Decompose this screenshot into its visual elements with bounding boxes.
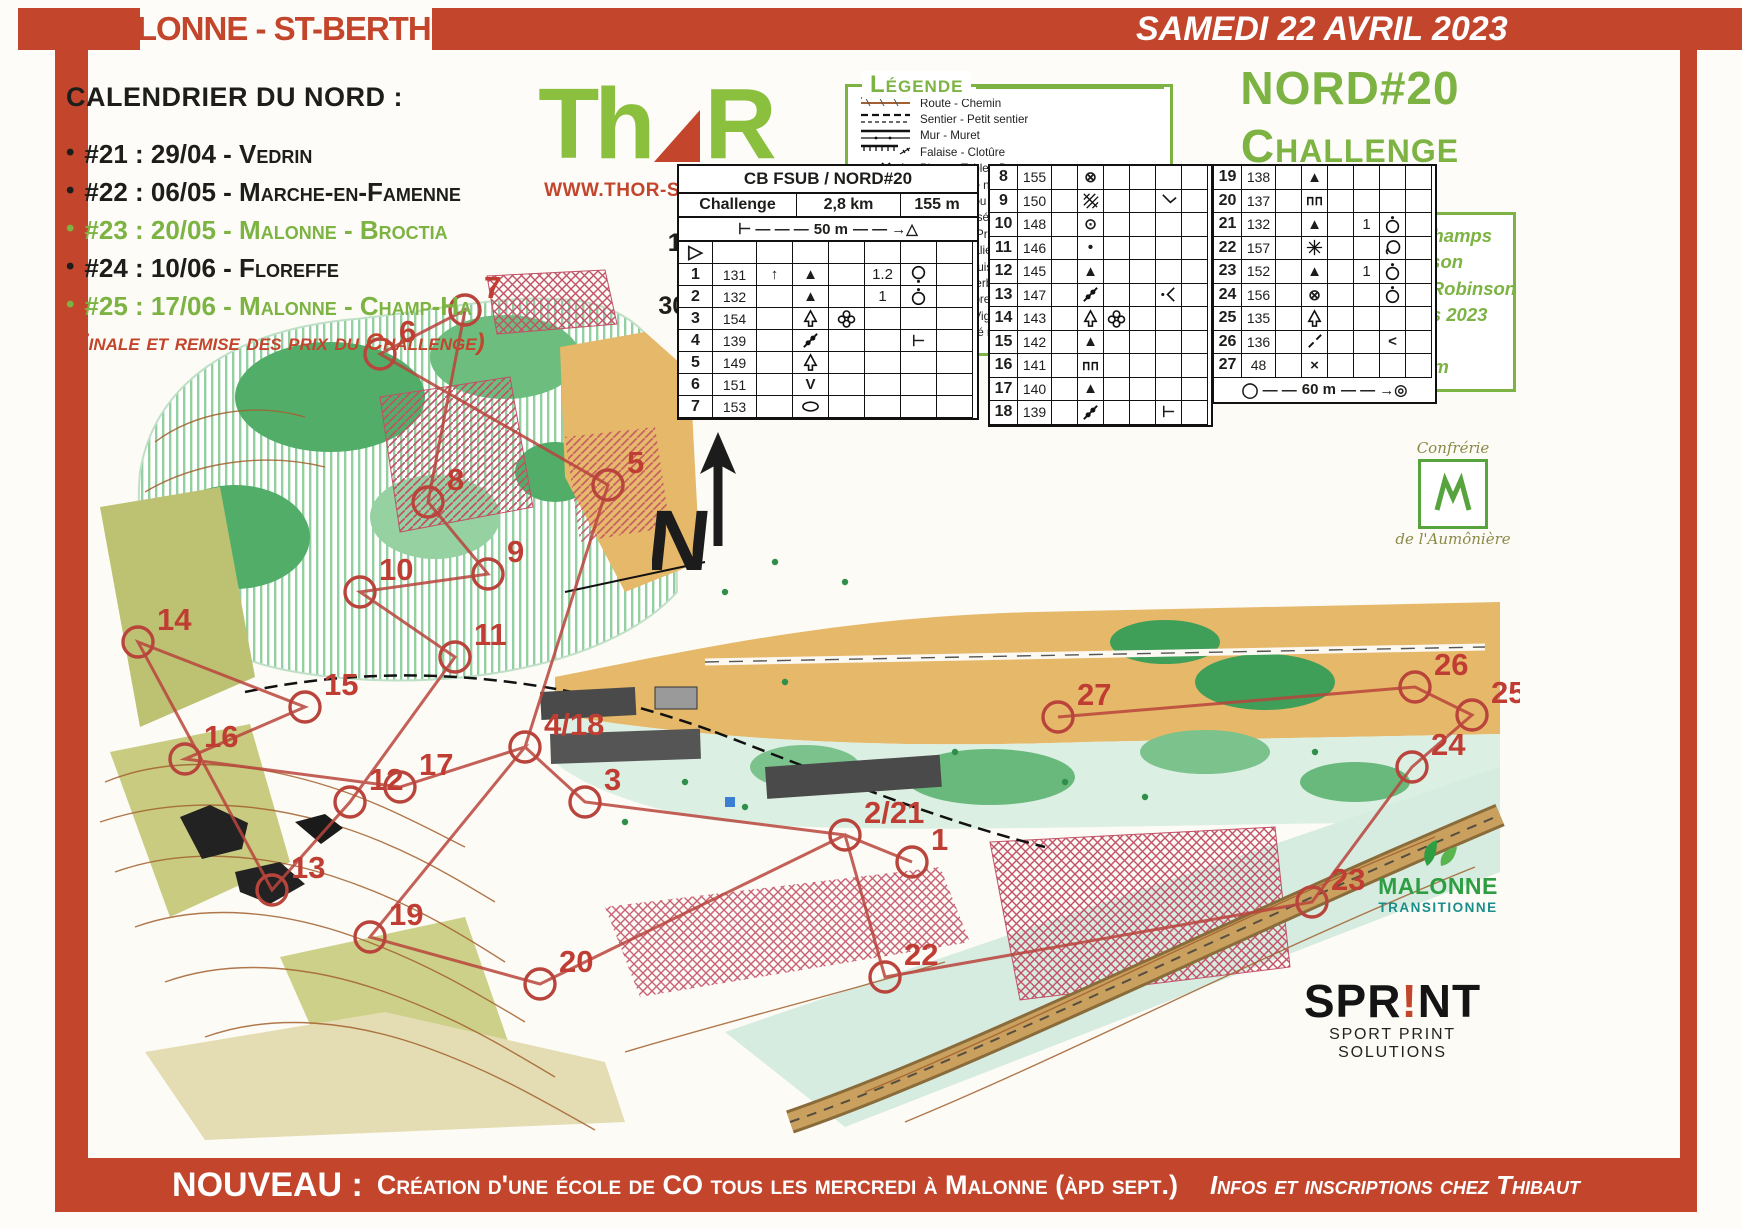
cd-cell: 135 (1242, 307, 1276, 331)
cd-cell: 13 (990, 284, 1018, 308)
cd-cell (1302, 237, 1328, 261)
finish-scale-label: 60 m (1302, 381, 1336, 398)
bullet-icon: • (66, 253, 74, 284)
sprint-name: SPR!NT (1285, 978, 1500, 1024)
cd-cell (1182, 260, 1208, 284)
cd-cell: 139 (1018, 401, 1052, 425)
cd-cell: 140 (1018, 378, 1052, 402)
cd-cell (1052, 190, 1078, 214)
cd-cell (1406, 331, 1432, 355)
event-title: NORD#20 Challenge (1200, 60, 1500, 175)
cd-cell (901, 242, 937, 264)
cd-cell (1354, 166, 1380, 190)
cd-cell (1328, 354, 1354, 378)
cd-cell (1276, 237, 1302, 261)
cd-cell: 148 (1018, 213, 1052, 237)
legend-item-label: Sentier - Petit sentier (920, 113, 1028, 126)
cd-cell (937, 352, 973, 374)
control-rows: 19138▲2013721132▲12215723152▲124156⊗2513… (1214, 166, 1435, 378)
cd-cell (1130, 260, 1156, 284)
cd-cell: 1.2 (865, 264, 901, 286)
cd-cell (1156, 284, 1182, 308)
calendar-item-text: #23 : 20/05 - Malonne - Broctia (84, 215, 447, 246)
cd-cell: 139 (713, 330, 757, 352)
control-number: 14 (157, 602, 192, 637)
cd-cell: 20 (1214, 190, 1242, 214)
cd-cell (1354, 331, 1380, 355)
malonne-transitionne-line1: MALONNE (1368, 873, 1508, 900)
cd-cell (829, 242, 865, 264)
cd-cell: 17 (990, 378, 1018, 402)
cd-cell (1104, 190, 1130, 214)
cd-cell (1406, 260, 1432, 284)
cd-cell: 14 (990, 307, 1018, 331)
control-rows: ▷1131↑▲1.22132▲131544139⊢51496151V7153 (679, 242, 977, 418)
cd-cell: 2 (679, 286, 713, 308)
confrerie-line2: de l'Aumônière (1388, 531, 1518, 548)
cd-cell (1302, 190, 1328, 214)
cd-cell (1104, 331, 1130, 355)
cd-cell (1156, 166, 1182, 190)
bullet-icon: • (66, 177, 74, 208)
cd-cell (1380, 260, 1406, 284)
cd-cell (793, 396, 829, 418)
cd-cell (1182, 190, 1208, 214)
calendar-item: •#24 : 10/06 - Floreffe (66, 253, 496, 284)
cd-cell: < (1380, 331, 1406, 355)
control-number: 17 (419, 747, 453, 782)
cd-cell: 137 (1242, 190, 1276, 214)
legend-item-label: Mur - Muret (920, 129, 980, 142)
cd-cell (757, 242, 793, 264)
cd-cell (1130, 237, 1156, 261)
cd-cell (1104, 284, 1130, 308)
cd-cell (793, 330, 829, 352)
calendar-item: •#23 : 20/05 - Malonne - Broctia (66, 215, 496, 246)
cd-cell (1182, 354, 1208, 378)
malonne-transitionne-line2: TRANSITIONNE (1368, 900, 1508, 915)
cd-cell (1130, 307, 1156, 331)
event-title-line1: NORD#20 (1200, 60, 1500, 118)
cd-cell (865, 308, 901, 330)
event-location-text: MALONNE - ST-BERTHUIN (88, 10, 485, 48)
cd-cell (1406, 307, 1432, 331)
cd-cell (1130, 378, 1156, 402)
cd-cell: 16 (990, 354, 1018, 378)
banner-body: Création d'une école de CO tous les merc… (377, 1170, 1178, 1201)
control-card-group3: 19138▲2013721132▲12215723152▲124156⊗2513… (1212, 164, 1437, 404)
cd-cell (757, 286, 793, 308)
cd-cell (1354, 190, 1380, 214)
cd-cell: 154 (713, 308, 757, 330)
cd-cell (829, 308, 865, 330)
cd-cell (901, 396, 937, 418)
calendar-item: •#25 : 17/06 - Malonne - Champ-Ha (66, 291, 496, 322)
control-number: 15 (324, 667, 358, 702)
cd-cell (1156, 213, 1182, 237)
bottom-banner: NOUVEAU : Création d'une école de CO tou… (55, 1158, 1697, 1212)
cd-cell: ⊗ (1302, 284, 1328, 308)
cd-cell: 1 (1354, 260, 1380, 284)
control-number: 2/21 (864, 795, 924, 830)
calendar-item-text: #24 : 10/06 - Floreffe (84, 253, 339, 284)
legend-item-label: Falaise - Clotûre (920, 146, 1005, 159)
course-stat: Challenge (679, 194, 797, 216)
cd-cell: × (1302, 354, 1328, 378)
cd-cell: 131 (713, 264, 757, 286)
cd-cell (1078, 307, 1104, 331)
cd-cell (1406, 190, 1432, 214)
control-card-course-row: Challenge2,8 km155 m (679, 194, 977, 218)
legend-title: Légende (862, 71, 971, 99)
cd-cell (1052, 401, 1078, 425)
control-number: 3 (604, 762, 621, 797)
cd-cell (1328, 307, 1354, 331)
calendar-item-text: #21 : 29/04 - Vedrin (84, 139, 312, 170)
cd-cell (1276, 213, 1302, 237)
cd-cell (1328, 260, 1354, 284)
cd-cell (1276, 331, 1302, 355)
cd-cell (1130, 213, 1156, 237)
cd-cell (1078, 354, 1104, 378)
cd-cell (1156, 190, 1182, 214)
cd-cell (937, 396, 973, 418)
cd-cell (757, 374, 793, 396)
frame-right-bar (1680, 50, 1697, 1160)
control-number: 4/18 (544, 707, 604, 742)
control-number: 27 (1077, 677, 1111, 712)
event-location-title: MALONNE - ST-BERTHUIN (140, 8, 432, 50)
cd-cell: 143 (1018, 307, 1052, 331)
course-stat: 155 m (901, 194, 973, 216)
cd-cell (901, 374, 937, 396)
cd-cell (1104, 260, 1130, 284)
cd-cell: 1 (679, 264, 713, 286)
svg-text:N: N (652, 493, 715, 578)
cd-cell (1130, 401, 1156, 425)
bullet-icon: • (66, 139, 74, 170)
cd-cell: 11 (990, 237, 1018, 261)
cd-cell (1276, 307, 1302, 331)
cd-cell (829, 330, 865, 352)
cd-cell: 146 (1018, 237, 1052, 261)
cd-cell (1104, 354, 1130, 378)
cd-cell (1354, 237, 1380, 261)
start-scale-label: 50 m (814, 221, 848, 238)
control-number: 16 (204, 719, 238, 754)
cd-cell (1354, 307, 1380, 331)
cd-cell (757, 308, 793, 330)
cd-cell (937, 286, 973, 308)
cd-cell (1380, 237, 1406, 261)
cd-cell (865, 374, 901, 396)
cd-cell (1104, 237, 1130, 261)
calendar-note: (Finale et remise des prix du Challenge) (66, 329, 496, 357)
control-number: 19 (389, 897, 423, 932)
cd-cell (1078, 190, 1104, 214)
cd-cell: 19 (1214, 166, 1242, 190)
cd-cell: 156 (1242, 284, 1276, 308)
sprint-bang: ! (1401, 975, 1417, 1027)
calendar-block: CALENDRIER DU NORD : •#21 : 29/04 - Vedr… (66, 82, 496, 357)
control-card-group2: 8155⊗915010148⊙11146•12145▲1314714143151… (988, 164, 1213, 427)
cd-cell (1182, 284, 1208, 308)
calendar-list: •#21 : 29/04 - Vedrin•#22 : 06/05 - Marc… (66, 139, 496, 322)
sprint-tagline: SPORT PRINT SOLUTIONS (1285, 1026, 1500, 1062)
control-number: 20 (559, 944, 593, 979)
cd-cell (1380, 284, 1406, 308)
top-banner: MALONNE - ST-BERTHUIN SAMEDI 22 AVRIL 20… (18, 8, 1742, 50)
event-date: SAMEDI 22 AVRIL 2023 (1136, 10, 1508, 49)
cd-cell (937, 374, 973, 396)
cd-cell (1380, 354, 1406, 378)
confrerie-emblem-icon (1418, 459, 1488, 529)
cd-cell: 7 (679, 396, 713, 418)
cd-cell (1328, 331, 1354, 355)
cd-cell: 8 (990, 166, 1018, 190)
control-number: 26 (1434, 647, 1468, 682)
control-number: 22 (904, 937, 938, 972)
cd-cell (1328, 237, 1354, 261)
malonne-transitionne-logo: MALONNE TRANSITIONNE (1368, 838, 1508, 915)
cd-cell (1156, 354, 1182, 378)
control-number: 11 (474, 617, 507, 652)
cd-cell: 1 (865, 286, 901, 308)
cd-cell (1052, 307, 1078, 331)
cd-cell: ⊗ (1078, 166, 1104, 190)
cd-cell (829, 374, 865, 396)
thor-triangle-icon (654, 106, 702, 164)
start-scale-row: ⊢ — — —50 m— — →△ (679, 218, 977, 242)
control-number: 1 (931, 822, 948, 857)
control-number: 23 (1331, 862, 1365, 897)
cd-cell (757, 330, 793, 352)
cd-cell (1276, 190, 1302, 214)
cd-cell (1406, 237, 1432, 261)
calendar-title: CALENDRIER DU NORD : (66, 82, 496, 113)
cd-cell (829, 264, 865, 286)
control-number: 25 (1491, 675, 1520, 710)
cd-cell: 10 (990, 213, 1018, 237)
thor-logo-text-left: Th (538, 78, 650, 170)
cd-cell (1052, 284, 1078, 308)
legend-rule (976, 84, 1164, 89)
cd-cell (713, 242, 757, 264)
sprint-logo: SPR!NT SPORT PRINT SOLUTIONS (1285, 978, 1500, 1062)
calendar-item: •#22 : 06/05 - Marche-en-Famenne (66, 177, 496, 208)
cd-cell: V (793, 374, 829, 396)
cd-cell (1182, 237, 1208, 261)
cd-cell (1156, 260, 1182, 284)
cd-cell (1156, 307, 1182, 331)
cd-cell (1182, 401, 1208, 425)
cd-cell (901, 308, 937, 330)
cd-cell (1182, 213, 1208, 237)
cd-cell (1104, 213, 1130, 237)
cd-cell (1406, 354, 1432, 378)
cd-cell (1354, 284, 1380, 308)
cd-cell: 4 (679, 330, 713, 352)
cd-cell (901, 264, 937, 286)
cd-cell: 9 (990, 190, 1018, 214)
control-number: 24 (1431, 727, 1466, 762)
cd-cell (793, 352, 829, 374)
cd-cell (1276, 166, 1302, 190)
confrerie-line1: Confrérie (1388, 440, 1518, 457)
cd-cell: 15 (990, 331, 1018, 355)
cd-cell: ▲ (793, 286, 829, 308)
cd-cell (1328, 166, 1354, 190)
cd-cell (1052, 378, 1078, 402)
cd-cell (1354, 354, 1380, 378)
event-poster: 12/2134/18567891011121314151617192022232… (0, 0, 1742, 1229)
cd-cell (1182, 378, 1208, 402)
cd-cell (865, 396, 901, 418)
cd-cell (829, 286, 865, 308)
cd-cell (1182, 331, 1208, 355)
cd-cell: 153 (713, 396, 757, 418)
cd-cell: 152 (1242, 260, 1276, 284)
cd-cell (829, 396, 865, 418)
cd-cell (1078, 284, 1104, 308)
cd-cell (937, 264, 973, 286)
cd-cell (1406, 284, 1432, 308)
cd-cell: 151 (713, 374, 757, 396)
banner-lead: NOUVEAU : (172, 1166, 363, 1205)
cd-cell: ↑ (757, 264, 793, 286)
cd-cell (901, 352, 937, 374)
cd-cell: 48 (1242, 354, 1276, 378)
cd-cell (1130, 284, 1156, 308)
control-number: 10 (379, 552, 413, 587)
cd-cell (1104, 166, 1130, 190)
cd-cell (1104, 401, 1130, 425)
control-card-title: CB FSUB / NORD#20 (679, 166, 977, 194)
cd-cell: 132 (713, 286, 757, 308)
cd-cell (1130, 331, 1156, 355)
control-rows: 8155⊗915010148⊙11146•12145▲1314714143151… (990, 166, 1211, 425)
cd-cell (1276, 260, 1302, 284)
cd-cell (865, 330, 901, 352)
cd-cell (1130, 166, 1156, 190)
cd-cell: ▲ (1302, 260, 1328, 284)
cd-cell: 142 (1018, 331, 1052, 355)
cd-cell (1052, 260, 1078, 284)
cd-cell: 147 (1018, 284, 1052, 308)
cd-cell (1302, 331, 1328, 355)
cd-cell (793, 308, 829, 330)
cd-cell (1130, 190, 1156, 214)
finish-scale-row: ◯ — —60 m— — →◎ (1214, 378, 1435, 402)
cd-cell: 157 (1242, 237, 1276, 261)
cd-cell: ▲ (1302, 166, 1328, 190)
cd-cell (937, 308, 973, 330)
cd-cell (1380, 190, 1406, 214)
cd-cell: 150 (1018, 190, 1052, 214)
cd-cell: 138 (1242, 166, 1276, 190)
cd-cell (1078, 401, 1104, 425)
cd-cell: 21 (1214, 213, 1242, 237)
cd-cell (1052, 213, 1078, 237)
cd-cell (1156, 237, 1182, 261)
cd-cell (1104, 378, 1130, 402)
cd-cell (1380, 166, 1406, 190)
bullet-icon: • (66, 291, 74, 322)
cd-cell (865, 352, 901, 374)
cd-cell: 5 (679, 352, 713, 374)
cd-cell: 26 (1214, 331, 1242, 355)
calendar-item: •#21 : 29/04 - Vedrin (66, 139, 496, 170)
control-card-group1: CB FSUB / NORD#20Challenge2,8 km155 m⊢ —… (677, 164, 979, 420)
leaves-icon (1411, 838, 1465, 868)
cd-cell: ⊢ (1156, 401, 1182, 425)
cd-cell (901, 286, 937, 308)
thor-logo-text-right: R (704, 78, 771, 170)
cd-cell (757, 396, 793, 418)
cd-cell (1302, 307, 1328, 331)
cd-cell: ▲ (793, 264, 829, 286)
cd-cell: 145 (1018, 260, 1052, 284)
cd-cell (1130, 354, 1156, 378)
cd-cell: 3 (679, 308, 713, 330)
cd-cell: 24 (1214, 284, 1242, 308)
cd-cell: ⊢ (901, 330, 937, 352)
banner-tail: Infos et inscriptions chez Thibaut (1210, 1170, 1580, 1201)
cd-cell (1182, 307, 1208, 331)
cd-cell (1182, 166, 1208, 190)
control-number: 5 (627, 445, 644, 480)
cd-cell (1380, 307, 1406, 331)
cd-cell: ▲ (1078, 260, 1104, 284)
cd-cell (937, 330, 973, 352)
cd-cell: 132 (1242, 213, 1276, 237)
cd-cell: 23 (1214, 260, 1242, 284)
bullet-icon: • (66, 215, 74, 246)
cd-cell: 136 (1242, 331, 1276, 355)
cd-cell: 22 (1214, 237, 1242, 261)
cd-cell (1104, 307, 1130, 331)
cd-cell (1052, 331, 1078, 355)
cd-cell: 25 (1214, 307, 1242, 331)
cd-cell: 141 (1018, 354, 1052, 378)
cd-cell: 27 (1214, 354, 1242, 378)
control-number: 13 (291, 850, 325, 885)
cd-cell (1380, 213, 1406, 237)
calendar-item-text: #22 : 06/05 - Marche-en-Famenne (84, 177, 461, 208)
cd-cell: 12 (990, 260, 1018, 284)
cd-cell (757, 352, 793, 374)
cd-cell: ▷ (679, 242, 713, 264)
cd-cell (1052, 237, 1078, 261)
cd-cell (829, 352, 865, 374)
cd-cell (1406, 166, 1432, 190)
cd-cell (937, 242, 973, 264)
cd-cell: ⊙ (1078, 213, 1104, 237)
course-stat: 2,8 km (797, 194, 901, 216)
north-arrow: N (652, 428, 762, 583)
cd-cell (865, 242, 901, 264)
cd-cell: 1 (1354, 213, 1380, 237)
cd-cell: 155 (1018, 166, 1052, 190)
cd-cell (1052, 166, 1078, 190)
cd-cell: 18 (990, 401, 1018, 425)
confrerie-logo: Confrérie de l'Aumônière (1388, 440, 1518, 547)
cd-cell (1328, 213, 1354, 237)
cd-cell (793, 242, 829, 264)
cd-cell: 149 (713, 352, 757, 374)
cd-cell: ▲ (1078, 378, 1104, 402)
cd-cell (1156, 378, 1182, 402)
